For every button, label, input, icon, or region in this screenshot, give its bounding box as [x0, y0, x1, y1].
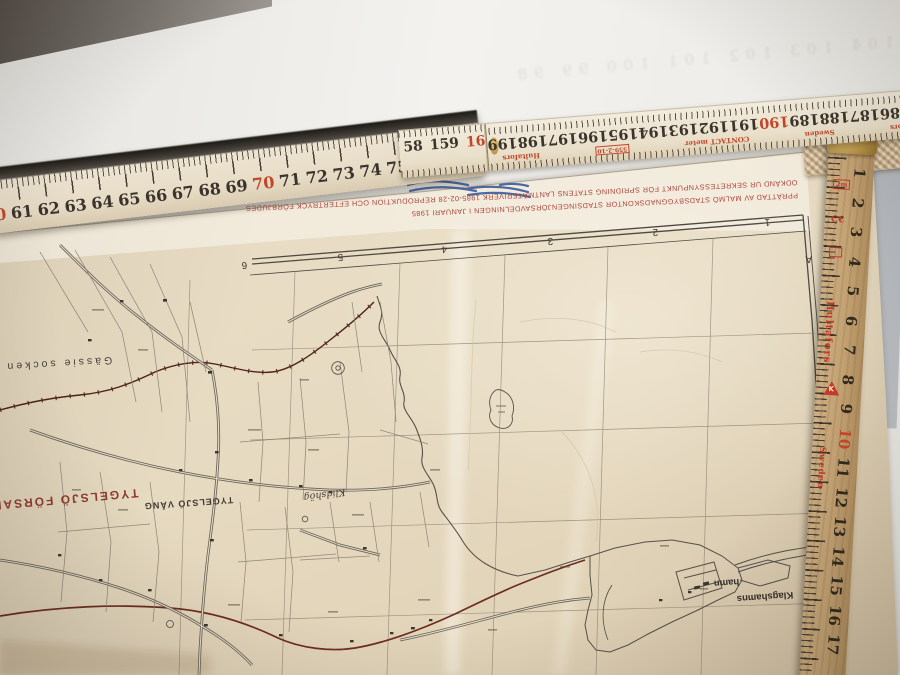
ruler-number: 69: [222, 175, 251, 197]
ruler-number: 67: [168, 181, 197, 203]
ruler-number: 187: [849, 106, 881, 125]
ruler-number: 5: [836, 275, 868, 308]
ruler-number: 74: [356, 159, 385, 181]
ruler-number: 11: [826, 451, 858, 484]
ruler-number: 9: [829, 392, 861, 425]
ruler-number: 70: [249, 172, 278, 194]
ruler-number: 17: [816, 628, 848, 661]
ruler-number: 13: [823, 510, 855, 543]
ruler-number: 194: [638, 122, 670, 141]
ruler-number: 7: [833, 334, 865, 367]
ruler-number: 197: [547, 129, 579, 148]
ruler-number: 159: [429, 135, 459, 153]
approval-mark: ⋮: [829, 247, 842, 258]
photo-of-map-with-rulers: 104 103 102 101 100 99 98: [0, 0, 900, 675]
ruler-number: 196: [578, 127, 610, 146]
ruler-number: 65: [115, 188, 144, 210]
ruler-number: 190: [759, 113, 791, 132]
ce-mark: C€: [831, 215, 845, 226]
ruler-number: 64: [88, 191, 117, 213]
ruler-number: 189: [789, 110, 821, 129]
ruler-number: 71: [276, 169, 305, 191]
ruler-number: 66: [141, 185, 170, 207]
ruler-number: 16: [818, 599, 850, 632]
ruler-number: 73: [329, 162, 358, 184]
ruler-number: 10: [828, 422, 860, 455]
ruler-number: 61: [7, 200, 36, 222]
ruler-number: 198: [517, 132, 549, 151]
ruler-number: 192: [698, 118, 730, 137]
ruler-number: 2: [841, 186, 873, 219]
ruler-number: 68: [195, 178, 224, 200]
ruler-near-segment: 58 159 16: [398, 124, 489, 178]
ruler-number: 14: [821, 540, 853, 573]
ruler-number: 72: [302, 165, 331, 187]
ruler-number: 199: [487, 134, 519, 153]
ruler-number: 195: [608, 125, 640, 144]
ruler-number: 12: [824, 481, 856, 514]
length-mark: 2m: [833, 179, 851, 190]
ruler-number: 188: [819, 108, 851, 127]
ruler-number: 6: [834, 304, 866, 337]
ruler-number: 193: [668, 120, 700, 139]
ruler-number: 58: [403, 138, 424, 155]
ruler-number: 191: [728, 115, 760, 134]
k-letter: K: [828, 385, 834, 393]
ruler-number: 186: [879, 103, 900, 122]
ruler-number: 63: [61, 194, 90, 216]
triangle-k-mark: K: [823, 381, 840, 396]
ruler-number: 16: [465, 133, 486, 150]
ruler-number: 15: [819, 569, 851, 602]
ruler-number: 4: [838, 245, 870, 278]
ruler-number: 62: [34, 197, 63, 219]
